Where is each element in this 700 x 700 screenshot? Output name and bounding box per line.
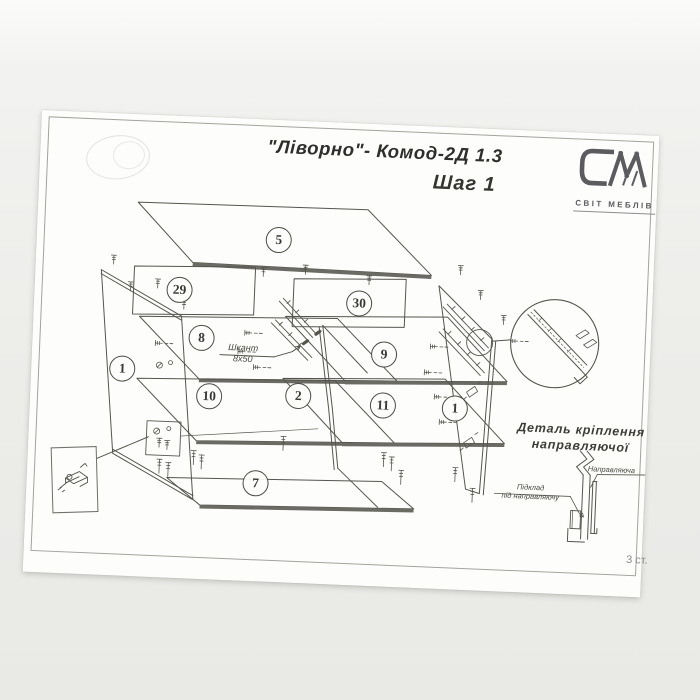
- cam-lock-detail-drawing: [52, 447, 96, 510]
- pad-label: Підклад під направляючу: [488, 481, 573, 503]
- scanned-assembly-instruction: { "document": { "title": "\"Ліворно\"- К…: [0, 0, 700, 700]
- left-side-panel-shape: [92, 270, 202, 500]
- dowel-size: 8х50: [218, 353, 268, 366]
- back-panel-29-shape: [133, 262, 256, 319]
- exploded-view-drawing: [23, 110, 660, 597]
- dowel-label: Шкант 8х50: [218, 342, 269, 367]
- svit-mebliv-logo: СВІТ МЕБЛІВ: [570, 145, 661, 223]
- hardware-detail-box: [51, 446, 99, 513]
- page-count: 3 ст.: [595, 553, 647, 567]
- svit-mebliv-logo-monogram: [576, 145, 656, 190]
- logo-company-name: СВІТ МЕБЛІВ: [573, 198, 656, 214]
- instruction-page: "Ліворно"- Комод-2Д 1.3 Шаг 1 СВІТ МЕБЛІ…: [23, 110, 660, 597]
